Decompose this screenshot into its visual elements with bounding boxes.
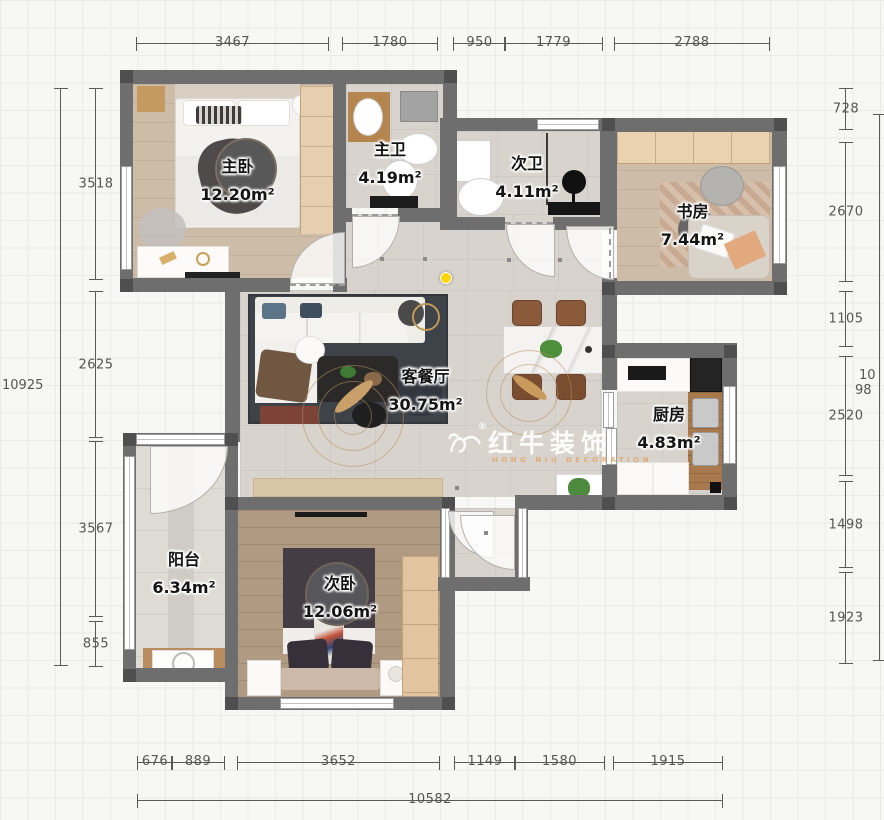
balcony-door: [136, 434, 225, 445]
ceiling-spot: [558, 258, 562, 262]
dim-value: 1105: [828, 312, 863, 327]
ceiling-spot: [423, 257, 427, 261]
room-name: 次卧: [296, 570, 384, 598]
room-name: 书房: [645, 198, 740, 226]
room-area: 4.19m²: [345, 164, 435, 192]
dim-value: 1923: [828, 611, 863, 626]
wall: [123, 668, 238, 682]
wall-corner: [602, 282, 615, 295]
wall-corner: [123, 669, 136, 682]
dim-left-2: 2625: [95, 292, 96, 437]
dim-bottom-5: 1580: [515, 762, 604, 763]
gold-floor-lamp: [412, 303, 440, 331]
dim-left-overall: [60, 89, 61, 665]
dim-value-clipped: 10: [859, 368, 876, 383]
dim-bottom-overall: 10582: [138, 800, 722, 801]
wall: [602, 118, 617, 228]
wall-corner: [724, 345, 737, 358]
wall-corner: [774, 118, 787, 131]
room-area: 4.83m²: [628, 429, 710, 457]
lamp-stem: [572, 192, 575, 204]
wall-corner: [120, 279, 133, 292]
dim-left-3: 3567: [95, 442, 96, 616]
wall: [602, 343, 737, 358]
dim-top-2: 1780: [343, 43, 437, 44]
dim-value: 1149: [467, 754, 502, 769]
room-label-second-bath: 次卫 4.11m²: [484, 150, 570, 206]
dim-value: 1780: [372, 35, 407, 50]
door-opening: [290, 284, 345, 286]
washing-machine: [400, 91, 438, 122]
wall: [120, 70, 457, 84]
dim-value: 728: [833, 102, 859, 117]
study-wardrobe: [617, 132, 770, 164]
wall: [438, 577, 530, 591]
wardrobe: [300, 86, 333, 234]
wall: [602, 495, 737, 510]
room-name: 主卫: [345, 136, 435, 164]
navy-pillow: [300, 303, 322, 318]
dim-right-overall: [879, 115, 880, 660]
dim-value: 1915: [650, 754, 685, 769]
ceiling-spot: [484, 531, 488, 535]
dim-value: 676: [142, 754, 168, 769]
dim-left-1: 3518: [95, 89, 96, 279]
wall: [225, 497, 455, 510]
dim-value: 10925: [2, 378, 43, 393]
room-label-study: 书房 7.44m²: [645, 198, 740, 254]
room-label-master-bath: 主卫 4.19m²: [345, 136, 435, 192]
registered-mark: ®: [478, 422, 487, 432]
tv: [295, 512, 367, 517]
wardrobe: [402, 556, 438, 696]
watermark: ® 红牛装饰 HONG NIU DECORATION: [448, 420, 628, 470]
dim-bottom-1: 676: [138, 762, 172, 763]
wall-corner: [442, 697, 455, 710]
room-area: 7.44m²: [645, 226, 740, 254]
wall-corner: [123, 433, 136, 446]
dim-value: 2625: [78, 357, 113, 372]
dim-value-clipped: 98: [855, 383, 872, 398]
window: [723, 386, 736, 464]
dim-value: 2788: [674, 35, 709, 50]
nightstand: [247, 660, 281, 696]
watermark-subtitle: HONG NIU DECORATION: [492, 456, 652, 464]
dim-value: 2520: [828, 409, 863, 424]
wall: [602, 295, 617, 390]
wall: [120, 278, 290, 292]
dim-value: 3567: [78, 522, 113, 537]
dim-top-4: 1779: [505, 43, 602, 44]
dim-right-4: 2520: [845, 357, 846, 475]
room-label-kitchen: 厨房 4.83m²: [628, 401, 710, 457]
wall-corner: [444, 70, 457, 83]
room-area: 4.11m²: [484, 178, 570, 206]
wall-corner: [225, 497, 238, 510]
room-name: 主卧: [180, 153, 295, 181]
room-name: 厨房: [628, 401, 710, 429]
door-opening: [505, 222, 553, 224]
bath-mat: [370, 196, 418, 208]
wall-corner: [120, 70, 133, 83]
room-label-second-bedroom: 次卧 12.06m²: [296, 570, 384, 626]
bed-headboard: [280, 668, 380, 690]
window: [773, 166, 786, 264]
window: [124, 456, 135, 650]
wall: [440, 217, 505, 230]
wall: [602, 118, 787, 132]
room-area: 30.75m²: [378, 391, 473, 419]
ceiling-spot: [455, 486, 459, 490]
wall: [602, 281, 787, 295]
pillow: [238, 100, 290, 126]
desk-clock: [196, 252, 210, 266]
hongniu-bull-logo-icon: [448, 428, 482, 458]
dim-top-3: 950: [454, 43, 505, 44]
fridge: [690, 356, 722, 392]
window: [537, 119, 599, 130]
door-opening: [609, 228, 611, 278]
ceiling-spot: [380, 257, 384, 261]
ceiling-spot: [507, 258, 511, 262]
dim-value: 889: [185, 754, 211, 769]
dim-bottom-4: 1149: [455, 762, 515, 763]
dim-top-1: 3467: [137, 43, 328, 44]
dim-value: 3467: [215, 35, 250, 50]
console-table: [253, 478, 443, 497]
wall-corner: [225, 697, 238, 710]
dim-bottom-3: 3652: [238, 762, 439, 763]
wall: [440, 131, 452, 230]
dim-value: 1498: [828, 517, 863, 532]
dim-value: 950: [466, 35, 492, 50]
dim-bottom-6: 1915: [614, 762, 722, 763]
round-rug: [138, 208, 186, 250]
room-area: 12.06m²: [296, 598, 384, 626]
wall: [225, 292, 240, 442]
door-opening: [352, 214, 398, 216]
window: [280, 698, 394, 709]
blue-pillow: [262, 303, 286, 319]
dim-value: 3518: [78, 177, 113, 192]
wall-corner: [602, 118, 615, 131]
wall-corner: [602, 497, 615, 510]
dim-right-6: 1923: [845, 573, 846, 663]
dim-bottom-2: 889: [172, 762, 224, 763]
cooktop: [628, 366, 666, 380]
dining-chair: [512, 300, 542, 326]
floorplan-canvas: 主卧 12.20m² 主卫 4.19m² 次卫 4.11m² 书房 7.44m²…: [0, 0, 884, 820]
dim-left-4: 855: [95, 622, 96, 666]
room-area: 6.34m²: [140, 574, 228, 602]
yellow-marker-dot: [440, 272, 452, 284]
dim-value: 3652: [321, 754, 356, 769]
wall: [333, 208, 352, 222]
wall-corner: [602, 345, 615, 358]
dim-right-5: 1498: [845, 482, 846, 567]
striped-pillow: [196, 106, 242, 124]
dim-value: 1580: [542, 754, 577, 769]
room-name: 客餐厅: [378, 363, 473, 391]
dim-value: 10582: [408, 792, 452, 807]
wall-corner: [774, 282, 787, 295]
bath-sink: [353, 98, 383, 136]
dining-chair: [556, 300, 586, 326]
room-label-master-bedroom: 主卧 12.20m²: [180, 153, 295, 209]
dim-right-3: 1105: [845, 292, 846, 346]
dim-right-1: 728: [845, 89, 846, 129]
watermark-brand: 红牛装饰: [488, 424, 612, 460]
room-label-living-dining: 客餐厅 30.75m²: [378, 363, 473, 419]
entry-side-window: [518, 508, 527, 578]
bedside-cabinet: [137, 86, 165, 112]
dim-value: 855: [83, 637, 109, 652]
wall-corner: [225, 433, 238, 446]
window: [121, 166, 132, 270]
dim-right-2: 2670: [845, 143, 846, 281]
room-area: 12.20m²: [180, 181, 295, 209]
wall: [515, 495, 602, 510]
wall-corner: [724, 497, 737, 510]
dim-value: 1779: [536, 35, 571, 50]
room-name: 次卫: [484, 150, 570, 178]
dim-value: 2670: [828, 205, 863, 220]
room-label-balcony: 阳台 6.34m²: [140, 546, 228, 602]
kitchen-corner-item: [710, 482, 721, 493]
room-name: 阳台: [140, 546, 228, 574]
table-item: [585, 346, 592, 353]
dim-top-5: 2788: [615, 43, 769, 44]
